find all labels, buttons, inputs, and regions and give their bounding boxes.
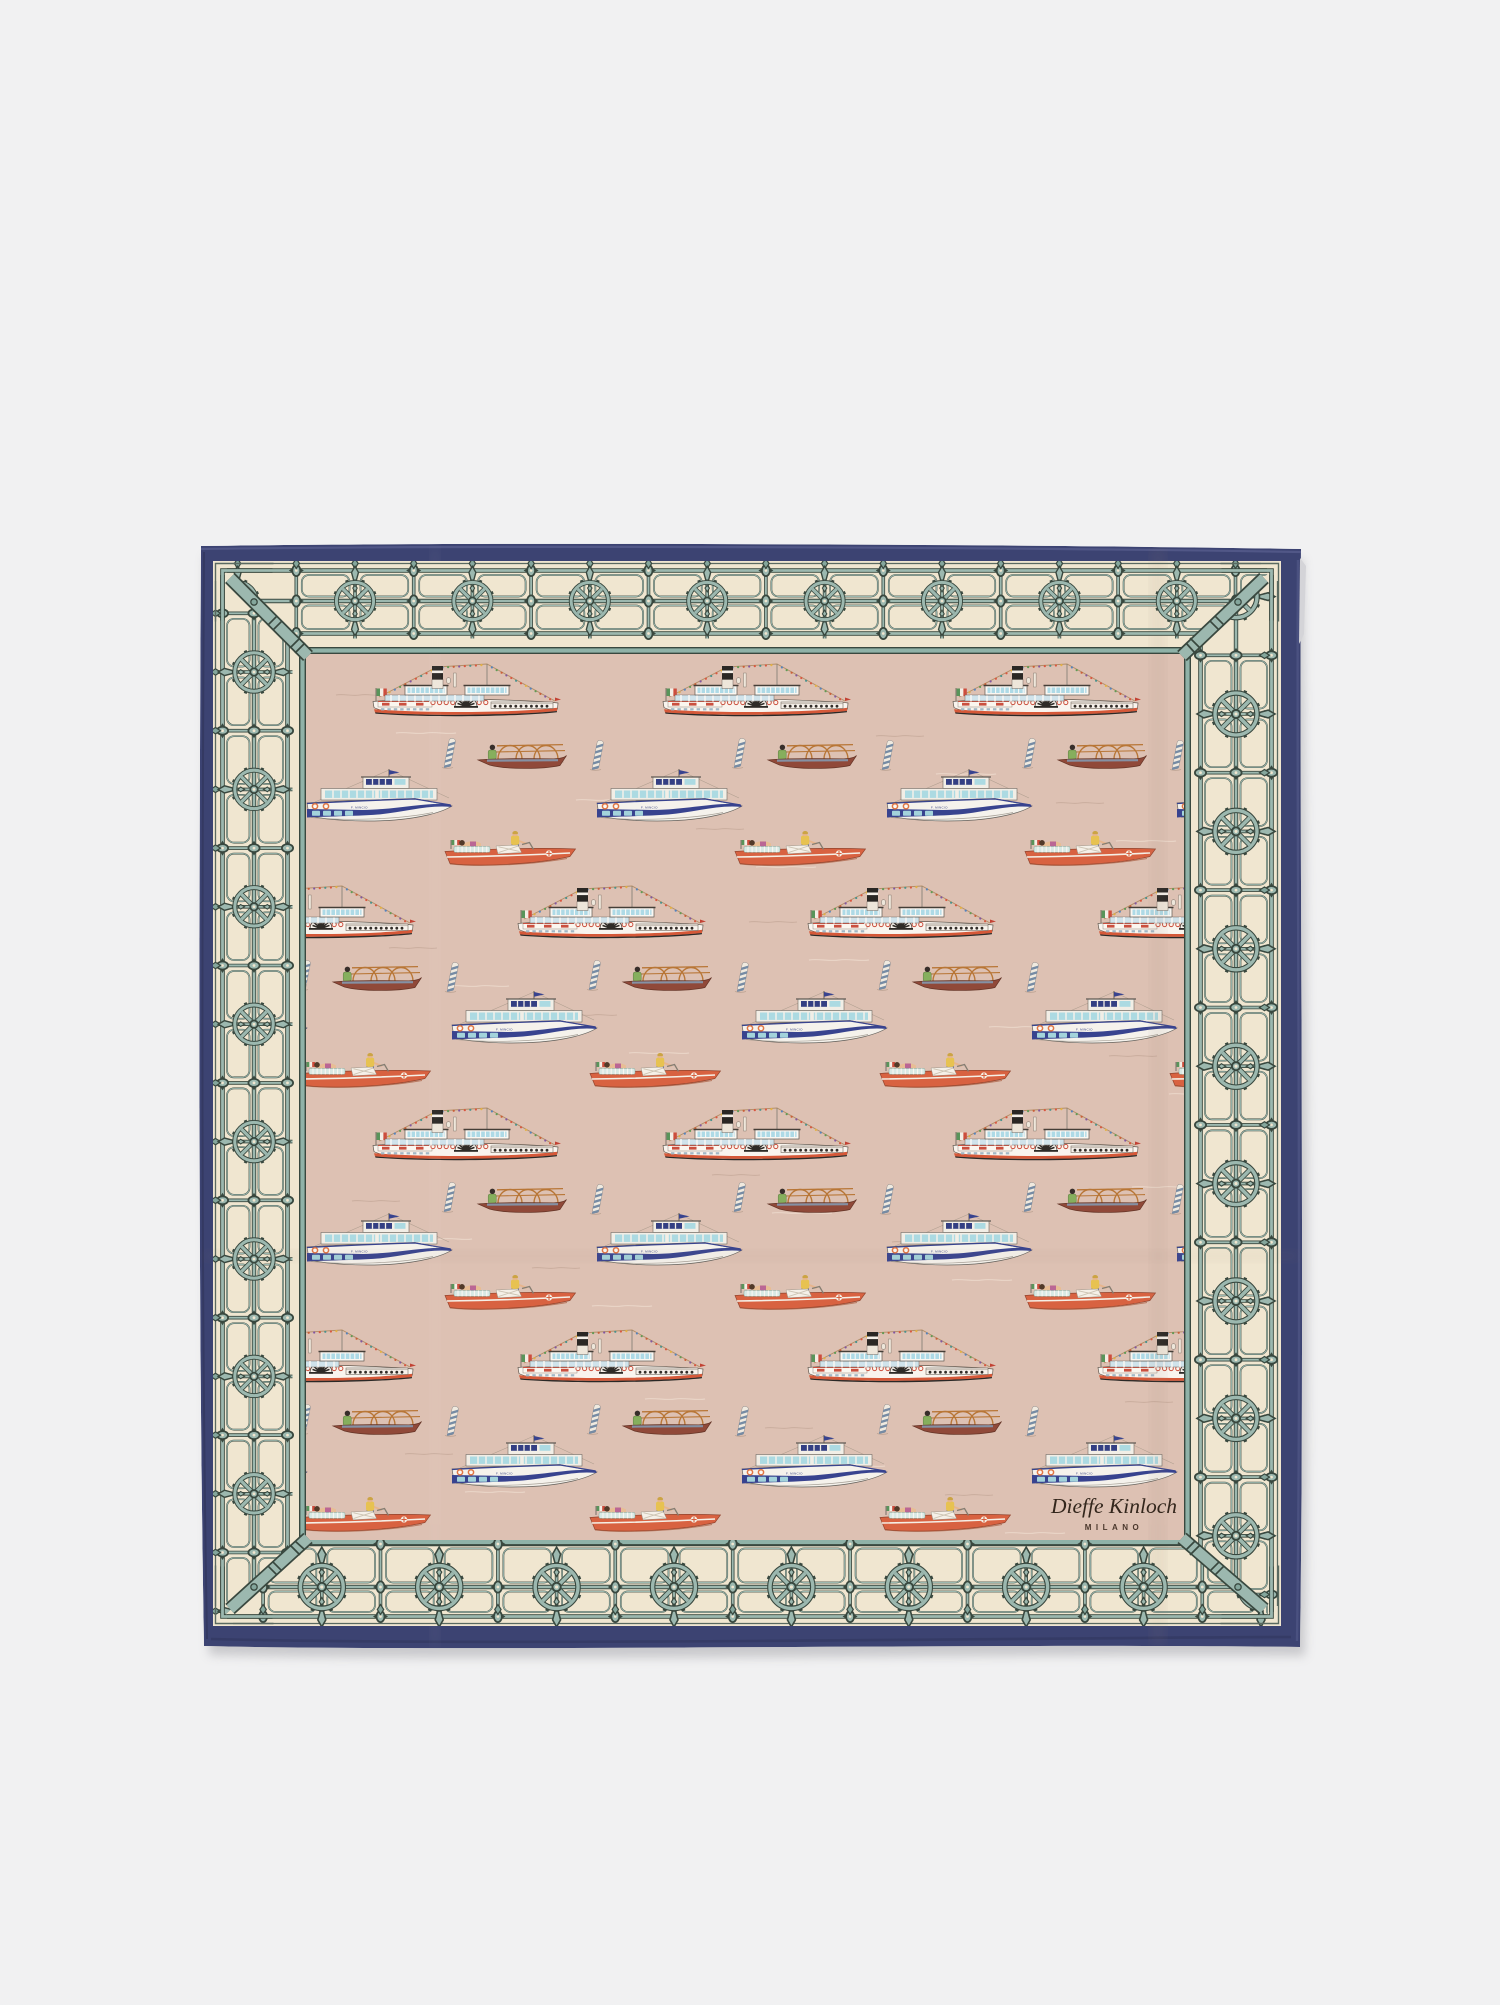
svg-text:MILANO: MILANO (1085, 1523, 1144, 1532)
svg-text:Dieffe Kinloch: Dieffe Kinloch (1050, 1494, 1177, 1518)
